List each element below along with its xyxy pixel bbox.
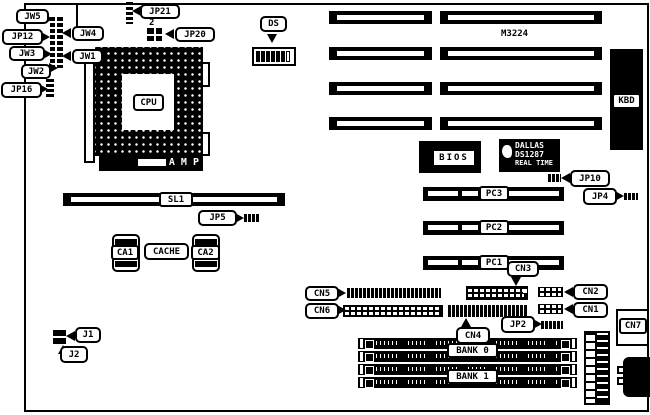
- power-contact-column: [597, 333, 608, 403]
- isa-slot-1-right: [440, 11, 602, 24]
- pc2-stripe-3: [507, 225, 559, 230]
- cn2-row-bottom: [540, 293, 561, 296]
- label-cn4: CN4: [456, 327, 490, 344]
- power-connector: [584, 331, 610, 405]
- cn3-pointer: [511, 277, 521, 286]
- pc3-stripe-1: [428, 191, 458, 196]
- din-pin-top: [617, 366, 625, 374]
- label-jw5: JW5: [16, 9, 49, 24]
- jumper-jp10: [548, 174, 561, 182]
- ca2-band-bottom: [195, 261, 217, 267]
- label-cn1: CN1: [573, 302, 608, 318]
- label-jp2: JP2: [501, 316, 535, 333]
- ca2-label: CA2: [191, 245, 220, 260]
- sl1-label: SL1: [159, 192, 193, 207]
- jumper-block-jp20: [147, 28, 162, 41]
- label-jw3: JW3: [9, 46, 45, 61]
- jumper-j1: [53, 330, 66, 346]
- dip-switch-pos-2: [261, 51, 265, 62]
- dip-switch-pos-3: [266, 51, 270, 62]
- label-jp10: JP10: [570, 170, 610, 187]
- dallas-line3: REAL TIME: [515, 159, 553, 168]
- label-cn2: CN2: [573, 284, 608, 300]
- isa-slot-3-right: [440, 82, 602, 95]
- dallas-line2: DS1287: [515, 150, 553, 159]
- jp10-pointer: [561, 173, 570, 183]
- isa-slot-4-right: [440, 117, 602, 130]
- cpu-label: CPU: [133, 94, 164, 111]
- connector-cn6: [343, 305, 443, 317]
- j1-pointer: [66, 331, 75, 341]
- dip-switch-ds: [252, 47, 296, 66]
- label-jp5: JP5: [198, 210, 237, 226]
- pc3-label: PC3: [479, 186, 509, 201]
- cn1-pointer: [564, 304, 573, 314]
- label-jw1: JW1: [72, 49, 103, 64]
- pc2-stripe-2: [462, 225, 478, 230]
- ca1-label: CA1: [111, 245, 139, 260]
- dallas-line1: DALLAS: [515, 141, 553, 150]
- label-cn3: CN3: [507, 261, 539, 277]
- dip-switch-pos-4: [271, 51, 275, 62]
- cn4-pointer: [461, 318, 471, 327]
- din-pin-bottom: [617, 377, 625, 385]
- dallas-rtc-chip: DALLAS DS1287 REAL TIME: [499, 139, 560, 172]
- jw1-pointer: [62, 51, 71, 61]
- board-model-label: M3224: [501, 29, 528, 39]
- cn7-label: CN7: [619, 318, 647, 334]
- ds-pointer: [267, 34, 277, 43]
- isa-slot-1-left: [329, 11, 432, 24]
- label-cache: CACHE: [144, 243, 189, 260]
- jumper-jp4: [624, 193, 638, 200]
- label-j2: J2: [60, 346, 88, 363]
- kbd-label: KBD: [613, 94, 640, 108]
- label-j1: J1: [75, 327, 101, 343]
- isa-slot-2-left: [329, 47, 432, 60]
- cn3-row-top: [468, 289, 524, 292]
- ca1-band-bottom: [115, 261, 137, 267]
- jumper-jp5: [244, 214, 260, 222]
- label-ds: DS: [260, 16, 287, 32]
- din-keyboard-connector: [623, 357, 650, 397]
- jp20-pointer: [165, 29, 174, 39]
- cn6-row-top: [345, 307, 439, 310]
- cn1-row-bottom: [540, 310, 561, 313]
- cn2-pointer: [564, 287, 573, 297]
- pc3-stripe-2: [462, 191, 478, 196]
- dip-switch-pos-1: [256, 51, 260, 62]
- connector-cn1: [538, 304, 563, 314]
- cn6-row-bottom: [345, 312, 439, 315]
- label-cn5: CN5: [305, 286, 339, 301]
- dip-switch-pos-6: [281, 51, 285, 62]
- connector-cn5: [347, 288, 441, 298]
- connector-cn3: [466, 286, 528, 300]
- label-cn6: CN6: [305, 303, 339, 319]
- amp-bar-window: [138, 159, 166, 166]
- pc1-stripe-2: [462, 260, 478, 265]
- cn3-row-bottom: [468, 294, 524, 297]
- amp-text: A M P: [169, 157, 199, 168]
- dip-switch-pos-5: [276, 51, 280, 62]
- bank0-label: BANK 0: [447, 343, 498, 358]
- connector-cn2: [538, 287, 563, 297]
- label-jw4: JW4: [72, 26, 104, 41]
- power-pin-column: [586, 333, 597, 403]
- isa-slot-3-left: [329, 82, 432, 95]
- amp-bar: A M P: [99, 154, 203, 171]
- bank1-label: BANK 1: [447, 369, 498, 384]
- label-jp4: JP4: [583, 188, 617, 205]
- label-jp20: JP20: [175, 27, 215, 42]
- cpu-zif-lever: [84, 57, 95, 163]
- cn2-row-top: [540, 288, 561, 291]
- cn1-row-top: [540, 305, 561, 308]
- dallas-logo-icon: [502, 145, 512, 158]
- label-jp21: JP21: [140, 4, 180, 19]
- jumper-jp2: [541, 321, 563, 329]
- bios-label: BIOS: [434, 151, 474, 165]
- dallas-text-block: DALLAS DS1287 REAL TIME: [515, 141, 553, 168]
- pc2-stripe-1: [428, 225, 458, 230]
- pc1-stripe-1: [428, 260, 458, 265]
- pc2-label: PC2: [479, 220, 509, 235]
- isa-slot-4-left: [329, 117, 432, 130]
- pc3-stripe-3: [507, 191, 559, 196]
- label-jp16: JP16: [1, 82, 42, 98]
- pc1-label: PC1: [479, 255, 509, 270]
- jw4-pointer: [62, 28, 71, 38]
- jp21-pin2-label: 2: [149, 18, 154, 28]
- cn3-key: [523, 289, 527, 293]
- dip-switch-pos-7: [286, 51, 290, 62]
- isa-slot-2-right: [440, 47, 602, 60]
- motherboard-diagram: CPU A M P JW5 JP12 JW3 JW2 JP16 JW4 JW1 …: [0, 0, 650, 415]
- label-jp12: JP12: [2, 29, 43, 45]
- label-jw2: JW2: [21, 64, 51, 79]
